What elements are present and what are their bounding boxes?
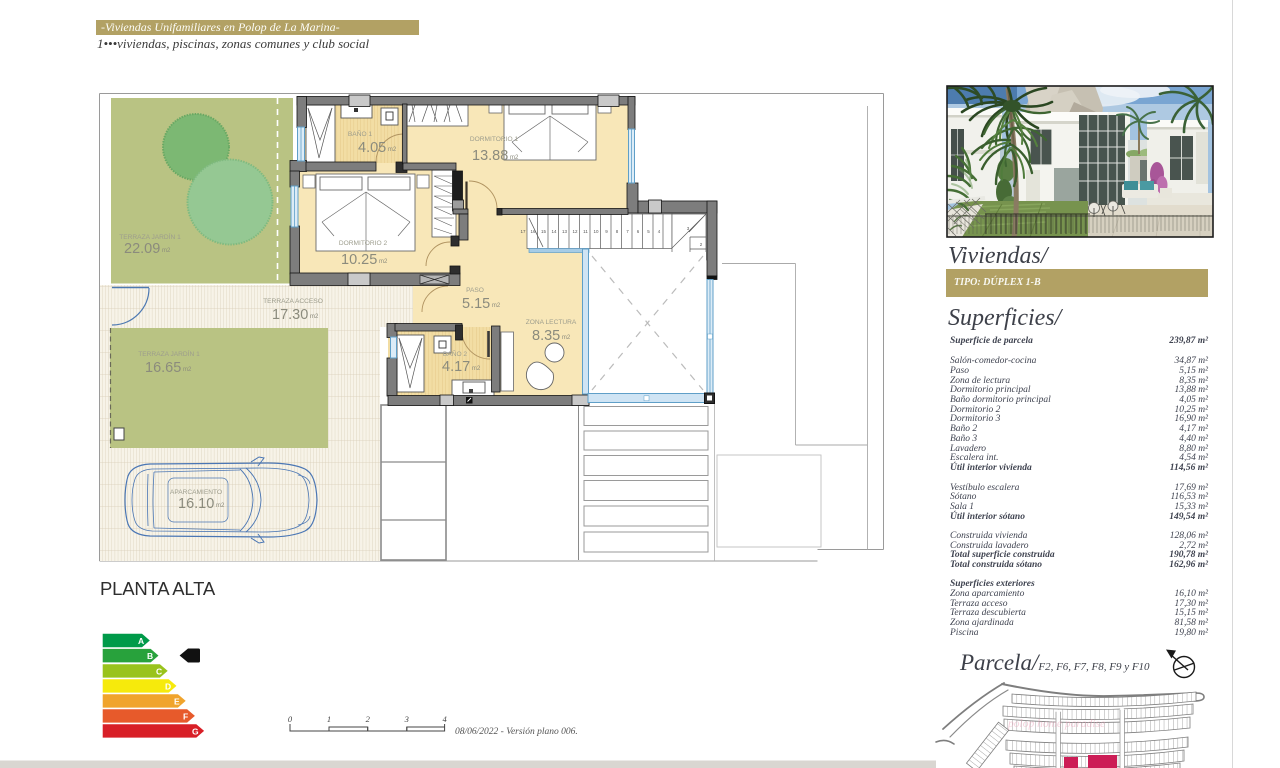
svg-text:PASO: PASO [466,287,484,294]
svg-text:15: 15 [541,229,547,234]
svg-text:E: E [174,697,180,707]
svg-text:F: F [183,712,188,722]
svg-text:17: 17 [520,229,526,234]
svg-text:TERRAZA JARDÍN 1: TERRAZA JARDÍN 1 [119,232,181,241]
svg-text:C: C [156,667,162,677]
svg-text:08/06/2022 - Versión plano 006: 08/06/2022 - Versión plano 006. [455,727,578,737]
svg-text:1: 1 [327,714,331,724]
svg-text:14: 14 [551,229,557,234]
svg-text:12: 12 [572,229,578,234]
svg-text:2: 2 [366,714,371,724]
svg-text:TERRAZA ACCESO: TERRAZA ACCESO [263,298,323,305]
svg-text:BAÑO 1: BAÑO 1 [348,129,373,138]
svg-text:BAÑO 2: BAÑO 2 [443,349,468,358]
svg-text:DORMITORIO 1: DORMITORIO 1 [470,136,519,143]
svg-text:G: G [192,727,199,737]
svg-text:ZONA LECTURA: ZONA LECTURA [526,319,577,326]
svg-text:D: D [165,682,171,692]
svg-text:A: A [138,636,144,646]
svg-text:B: B [147,651,153,661]
svg-text:0: 0 [288,714,293,724]
svg-text:16: 16 [530,229,536,234]
svg-text:4: 4 [442,714,447,724]
svg-text:10: 10 [593,229,599,234]
svg-text:11: 11 [583,229,588,234]
svg-text:polop home paradise: polop home paradise [1007,718,1105,730]
svg-text:APARCAMIENTO: APARCAMIENTO [170,489,222,496]
svg-text:3: 3 [404,714,409,724]
svg-text:DORMITORIO 2: DORMITORIO 2 [339,240,388,247]
svg-text:TERRAZA JARDÍN 1: TERRAZA JARDÍN 1 [138,349,200,358]
svg-text:13: 13 [562,229,568,234]
